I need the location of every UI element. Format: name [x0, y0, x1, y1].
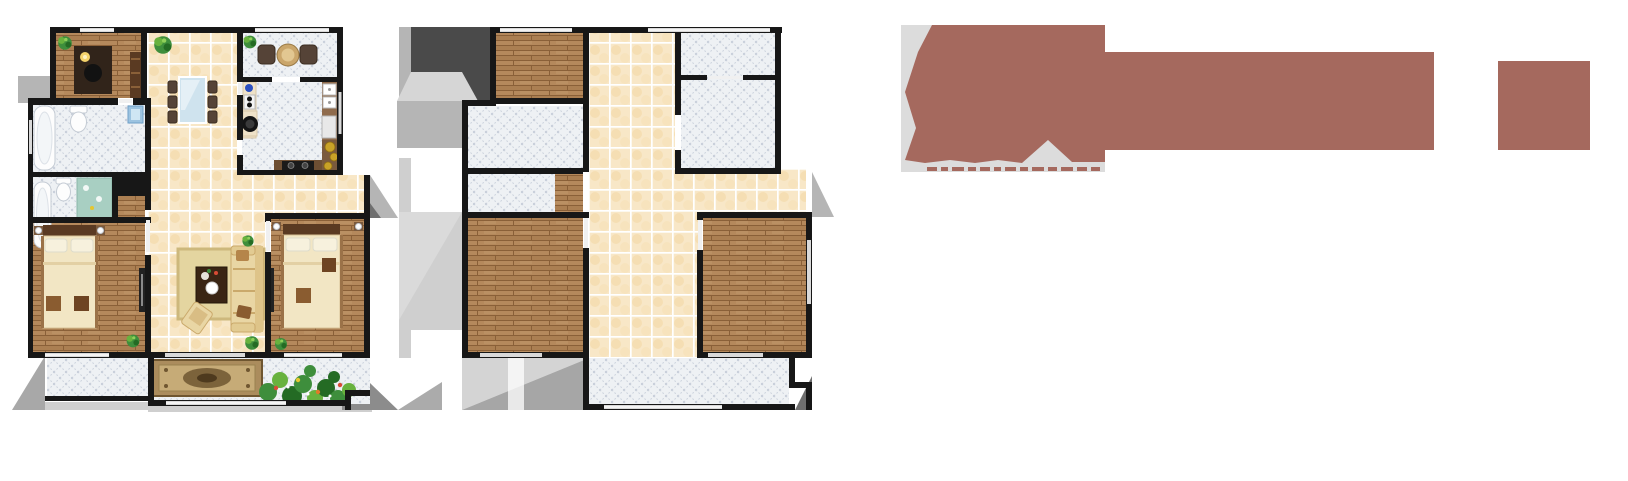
living-plant-top	[242, 235, 253, 246]
bedroom-right-door	[266, 221, 270, 251]
left-floorplan	[12, 27, 398, 412]
floorplan-scene	[0, 0, 1628, 481]
sofa	[231, 246, 263, 332]
logo-square	[1498, 61, 1590, 150]
study-plant	[58, 36, 72, 50]
m-mid-room-floor	[468, 106, 583, 168]
m-bedroom-left-floor	[468, 218, 583, 352]
watermark-logo	[901, 25, 1590, 172]
fridge	[322, 116, 336, 138]
middle-floorplan	[397, 27, 834, 410]
study-door	[119, 99, 132, 103]
balcony-plant	[244, 36, 257, 49]
dining-plant	[154, 36, 172, 54]
bedroom-left-plant	[127, 335, 140, 348]
m-bedroom-left-door	[584, 218, 588, 248]
shower	[77, 178, 112, 218]
m-room-door	[708, 76, 742, 79]
bottom-left-balcony-floor	[47, 358, 148, 396]
living-plant-bottom	[245, 336, 259, 350]
m-wood-room-floor	[496, 33, 583, 98]
toilet-1	[70, 106, 87, 132]
balcony-chair-right	[300, 45, 317, 64]
kettle	[245, 84, 253, 92]
m-balcony-floor	[589, 358, 789, 404]
m-small-room-floor	[468, 174, 555, 212]
logo-bar	[1105, 52, 1434, 150]
bed-right-headboard	[283, 224, 340, 235]
balcony-chair-left	[258, 45, 275, 64]
kitchen-door	[238, 83, 242, 94]
m-bedroom-right-door	[698, 220, 702, 250]
bedroom-right-plant	[275, 338, 287, 350]
desk-chair	[84, 64, 102, 82]
bed-left-headboard	[43, 225, 96, 236]
bedroom-left-door	[146, 220, 150, 252]
toilet-2	[56, 178, 71, 201]
oriental-carpet	[152, 360, 262, 396]
logo-glyph	[905, 25, 1105, 163]
middle-plan-floors	[468, 33, 806, 404]
m-right-rooms-floor	[681, 33, 775, 168]
floorplan-canvas	[0, 0, 1628, 481]
m-small-wood-floor	[555, 174, 583, 212]
m-bedroom-right-floor	[703, 218, 806, 352]
